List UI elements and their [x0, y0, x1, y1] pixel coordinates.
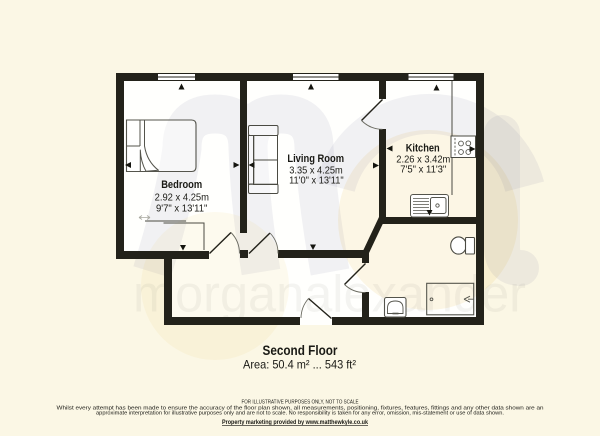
- svg-text:7'5" x 11'3": 7'5" x 11'3": [400, 164, 446, 176]
- svg-text:Second Floor: Second Floor: [263, 342, 338, 358]
- svg-text:2.92 x 4.25m: 2.92 x 4.25m: [155, 191, 210, 203]
- svg-text:approximate interpretation for: approximate interpretation for illustrat…: [96, 411, 504, 417]
- svg-text:9'7" x 13'11": 9'7" x 13'11": [156, 203, 208, 215]
- svg-text:Property marketing provided by: Property marketing provided by www.matth…: [222, 419, 368, 426]
- svg-text:Area: 50.4 m² ... 543 ft²: Area: 50.4 m² ... 543 ft²: [243, 357, 356, 371]
- svg-text:Bedroom: Bedroom: [161, 179, 202, 191]
- svg-text:11'0" x 13'11": 11'0" x 13'11": [289, 175, 344, 187]
- svg-text:Kitchen: Kitchen: [406, 142, 440, 154]
- svg-text:Living Room: Living Room: [287, 153, 344, 165]
